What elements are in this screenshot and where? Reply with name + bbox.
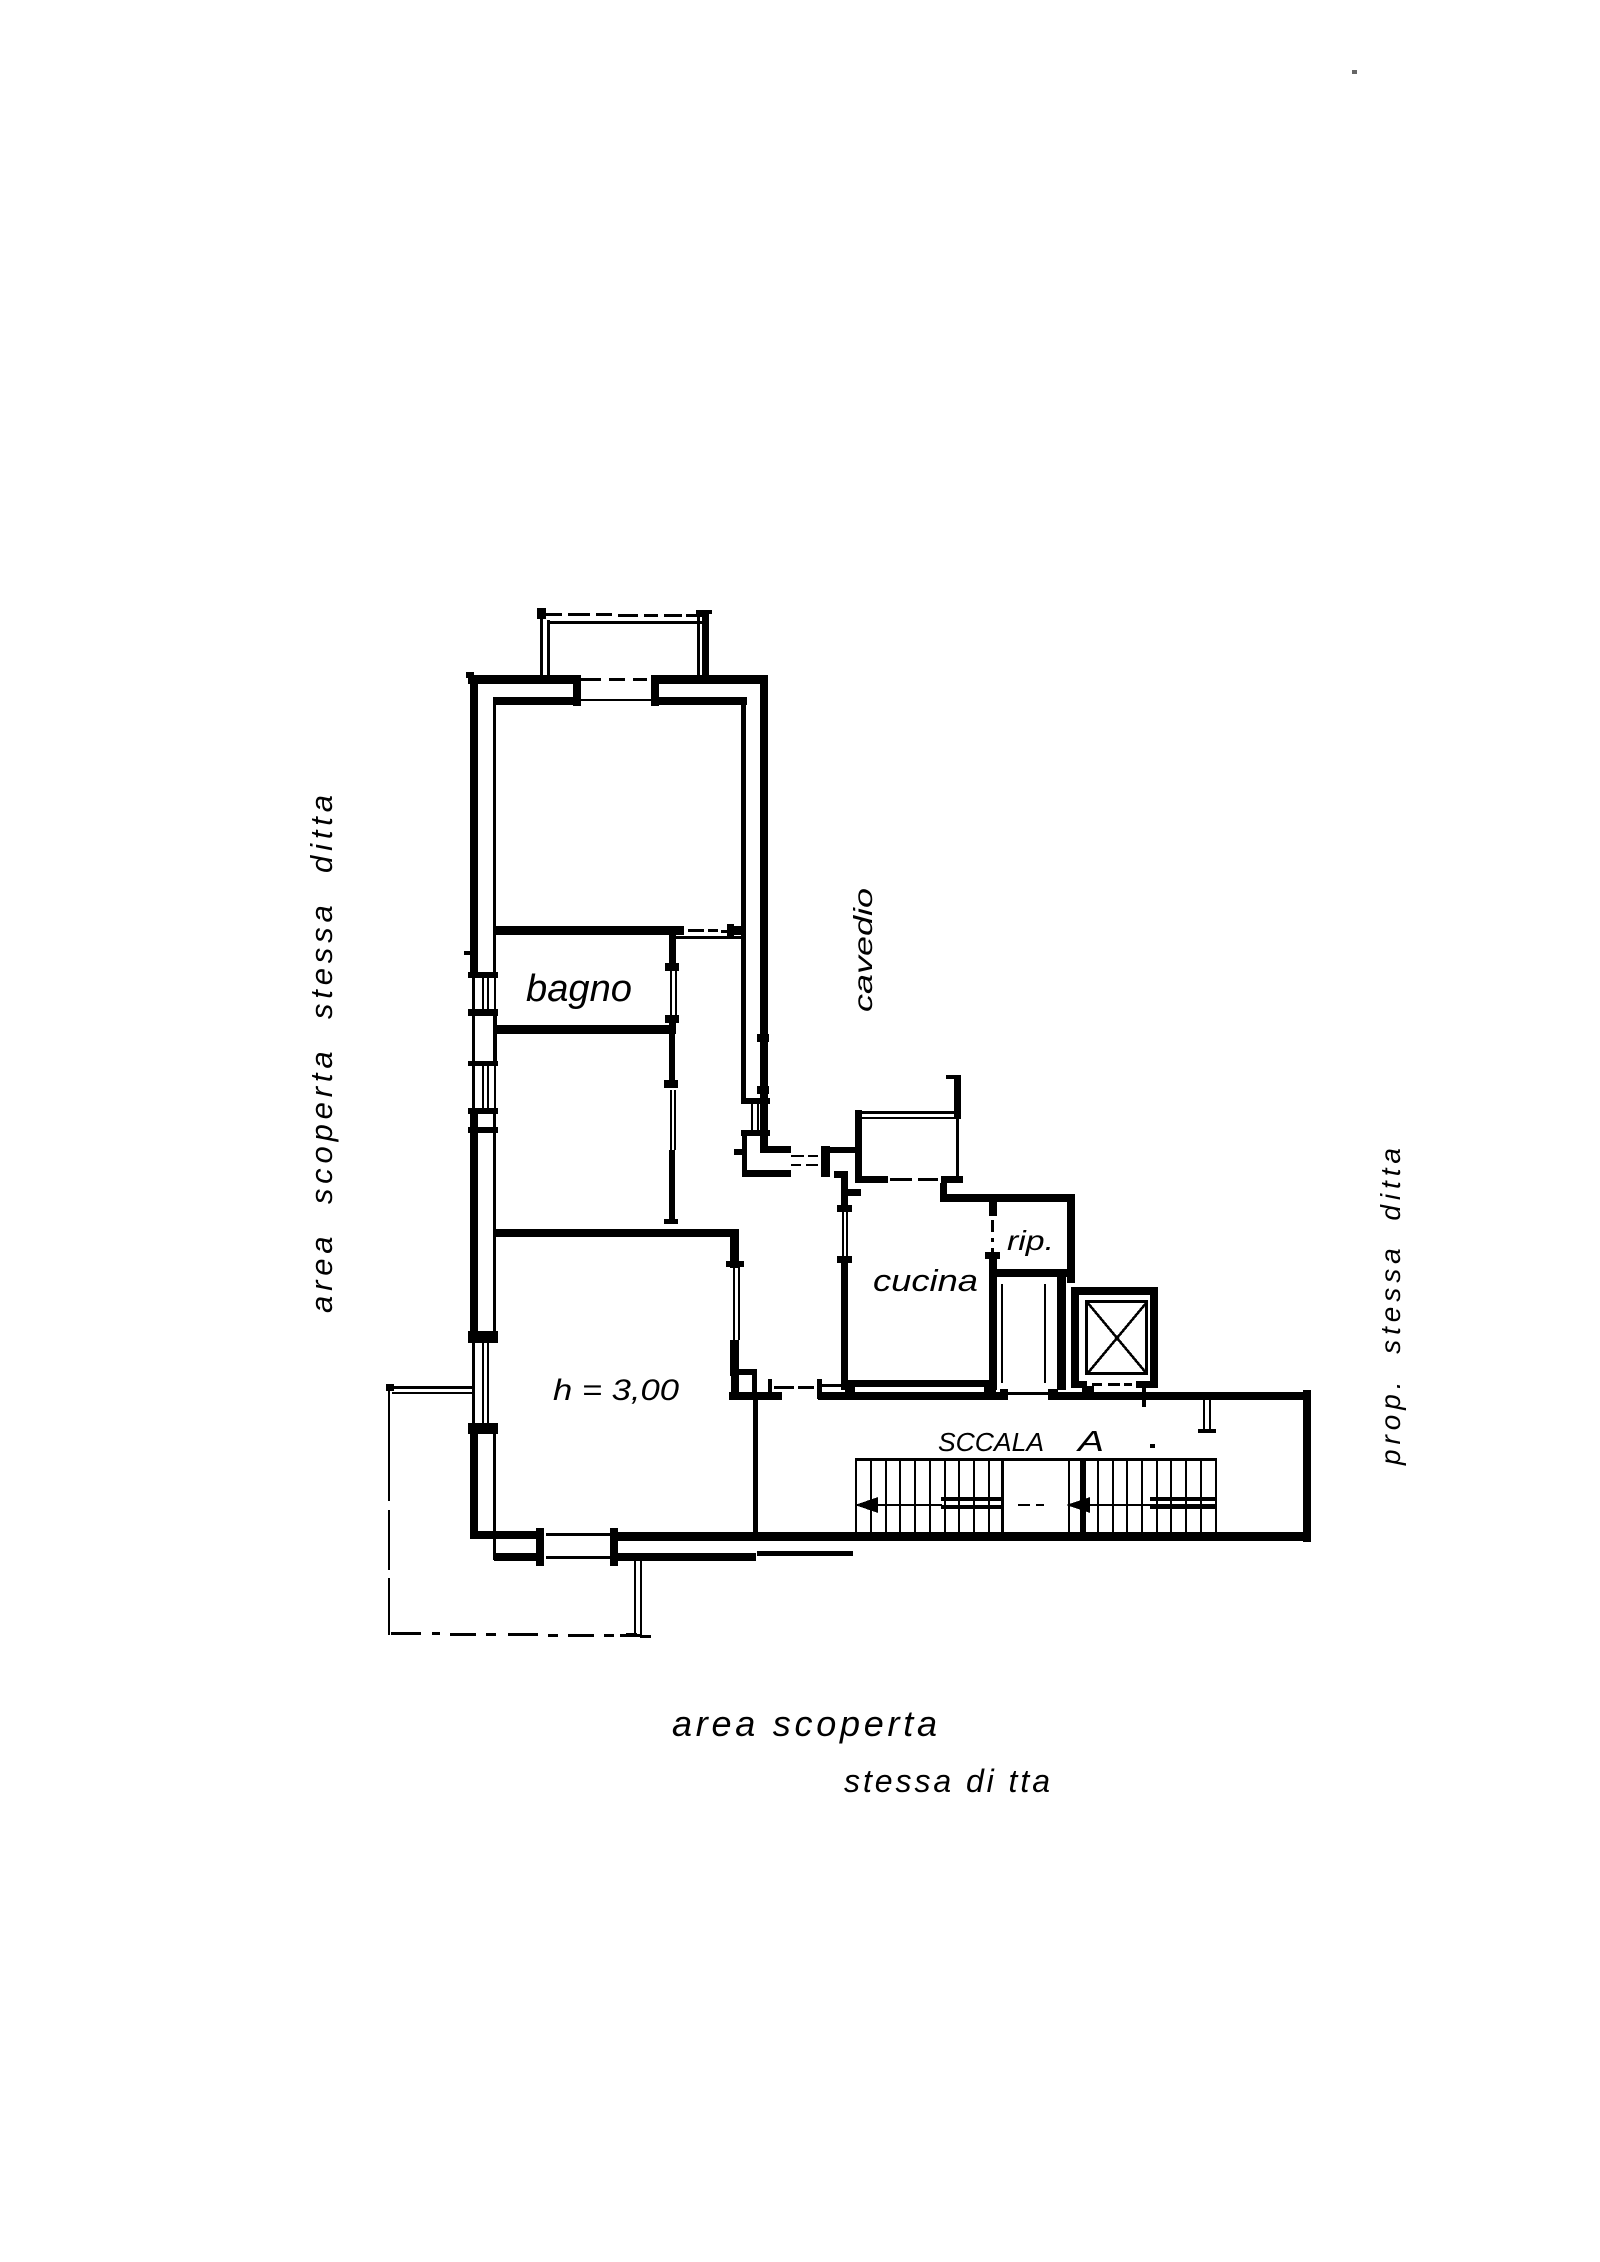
svg-text:h = 3,00: h = 3,00 [553,1374,679,1407]
svg-text:bagno: bagno [526,968,632,1010]
svg-text:A: A [1075,1426,1104,1458]
svg-text:rip.: rip. [1007,1225,1054,1256]
svg-text:stessa di tta: stessa di tta [844,1763,1050,1799]
svg-text:area scoperta stessa ditta: area scoperta stessa ditta [304,795,339,1313]
svg-text:cucina: cucina [873,1263,978,1298]
svg-text:area scoperta: area scoperta [672,1703,937,1744]
svg-text:cavedio: cavedio [848,888,878,1012]
svg-text:prop. stessa ditta: prop. stessa ditta [1375,1148,1406,1466]
svg-text:SCCALA: SCCALA [938,1427,1044,1457]
